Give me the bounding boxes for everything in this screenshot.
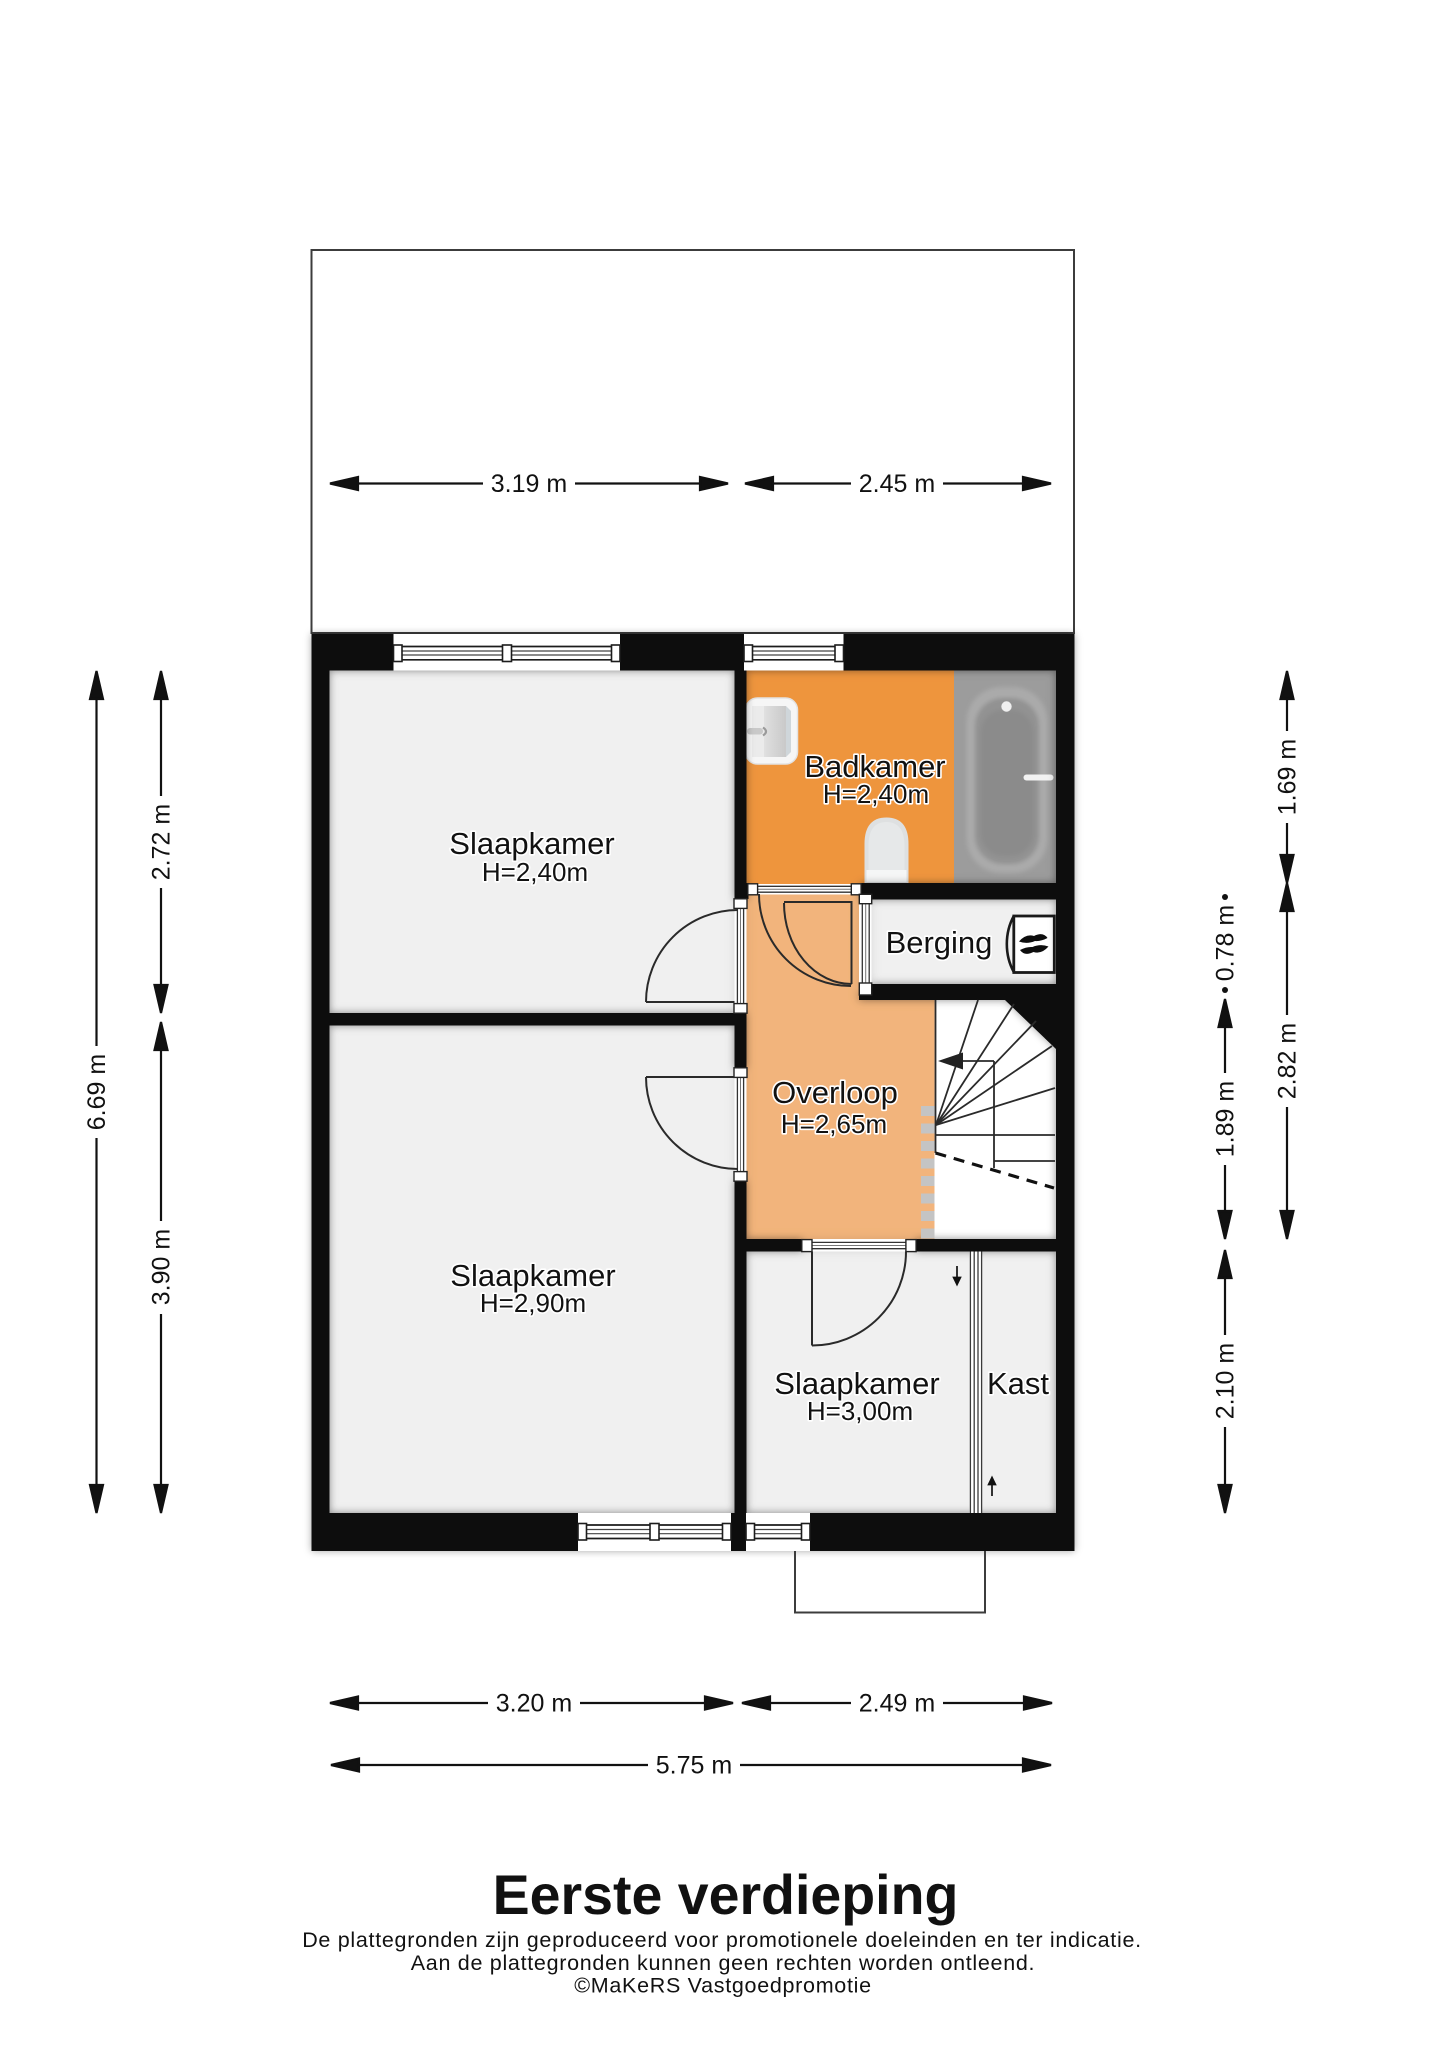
svg-text:2.45 m: 2.45 m: [859, 470, 935, 498]
svg-text:Aan de plattegronden kunnen ge: Aan de plattegronden kunnen geen rechten…: [411, 1951, 1035, 1975]
svg-text:5.75 m: 5.75 m: [656, 1752, 732, 1780]
svg-text:3.20 m: 3.20 m: [496, 1690, 572, 1718]
svg-text:H=2,40m: H=2,40m: [823, 779, 929, 809]
svg-text:Slaapkamer: Slaapkamer: [449, 826, 614, 861]
svg-text:0.78 m: 0.78 m: [1212, 905, 1240, 981]
svg-text:H=2,40m: H=2,40m: [482, 857, 588, 887]
svg-text:3.19 m: 3.19 m: [491, 470, 567, 498]
svg-text:3.90 m: 3.90 m: [148, 1229, 176, 1305]
svg-text:6.69 m: 6.69 m: [83, 1054, 111, 1130]
svg-text:H=3,00m: H=3,00m: [807, 1396, 913, 1426]
svg-text:H=2,65m: H=2,65m: [781, 1109, 887, 1139]
svg-text:©MaKeRS Vastgoedpromotie: ©MaKeRS Vastgoedpromotie: [574, 1974, 872, 1998]
svg-text:2.72 m: 2.72 m: [148, 804, 176, 880]
svg-text:2.49 m: 2.49 m: [859, 1690, 935, 1718]
svg-text:Eerste verdieping: Eerste verdieping: [493, 1864, 959, 1926]
svg-text:2.82 m: 2.82 m: [1274, 1023, 1302, 1099]
svg-text:1.89 m: 1.89 m: [1212, 1081, 1240, 1157]
svg-text:Overloop: Overloop: [772, 1075, 898, 1110]
svg-text:De plattegronden zijn geproduc: De plattegronden zijn geproduceerd voor …: [302, 1928, 1142, 1952]
svg-text:1.69 m: 1.69 m: [1274, 739, 1302, 815]
svg-text:Berging: Berging: [886, 925, 993, 960]
svg-text:2.10 m: 2.10 m: [1212, 1343, 1240, 1419]
svg-text:Kast: Kast: [987, 1366, 1049, 1401]
svg-text:H=2,90m: H=2,90m: [480, 1288, 586, 1318]
